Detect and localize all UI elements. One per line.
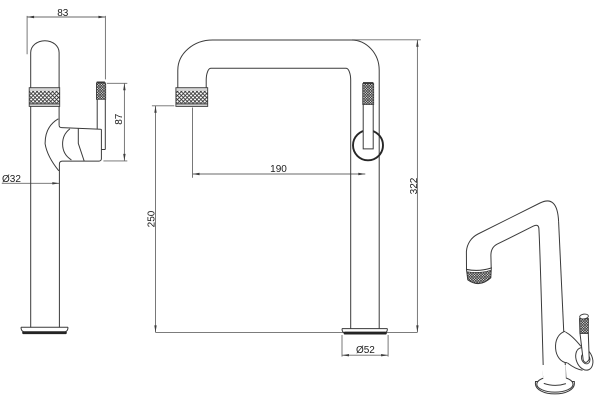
svg-text:87: 87	[114, 113, 125, 125]
svg-text:Ø52: Ø52	[356, 345, 375, 356]
svg-text:250: 250	[147, 210, 158, 227]
svg-text:190: 190	[270, 164, 287, 175]
svg-text:322: 322	[409, 177, 420, 194]
svg-text:Ø32: Ø32	[2, 174, 21, 185]
svg-text:83: 83	[57, 8, 69, 19]
